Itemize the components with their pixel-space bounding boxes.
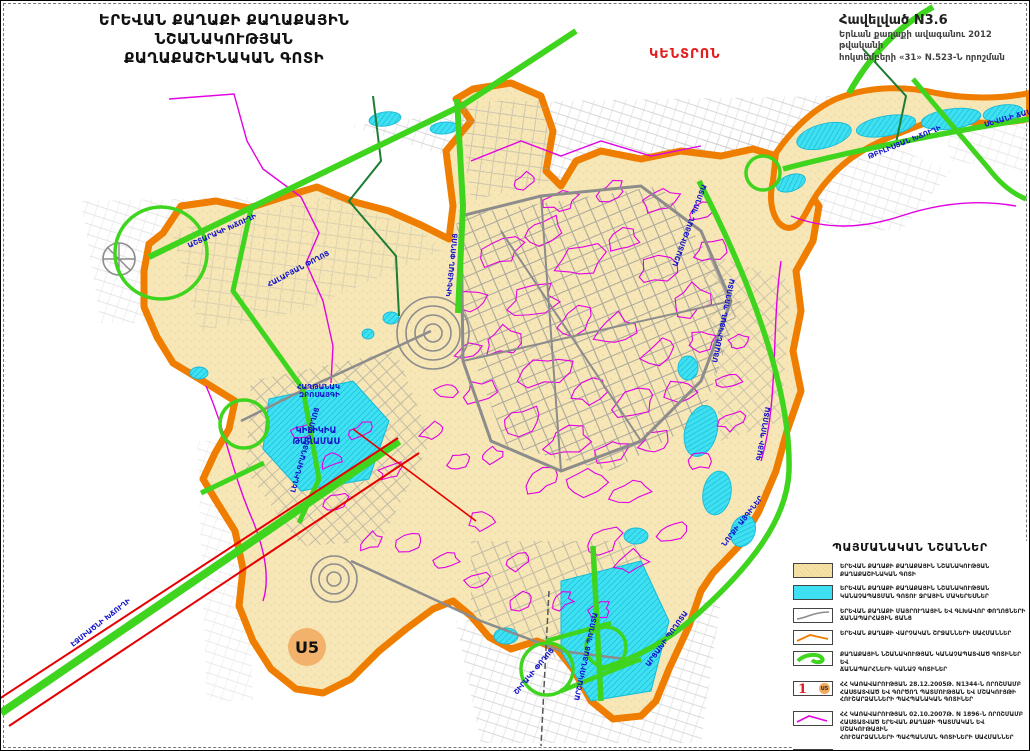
legend-item: ՀՀ ԿԱՌԱՎԱՐՈՒԹՅԱՆ 02.10.2007Թ. N 1896-Ն Ո… [793, 711, 1027, 743]
zone-u5-icon: U5 [819, 683, 830, 694]
legend-item-line: ՀՀ ԿԱՌԱՎԱՐՈՒԹՅԱՆ 02.10.2007Թ. N 1896-Ն Ո… [840, 712, 1027, 720]
page-title-line1: ԵՐԵՎԱՆ ՔԱՂԱՔԻ ՔԱՂԱՔԱՅԻՆ ՆՇԱՆԱԿՈՒԹՅԱՆ [39, 11, 409, 49]
water-green-patch [362, 329, 374, 339]
legend-item: ԵՐԵՎԱՆ ՔԱՂԱՔԻ ՔԱՂԱՔԱՅԻՆ ՆՇԱՆԱԿՈՒԹՅԱՆՔԱՂԱ… [793, 563, 1027, 579]
legend-item-line: ԵՐԵՎԱՆ ՔԱՂԱՔԻ ՔԱՂԱՔԱՅԻՆ ՆՇԱՆԱԿՈՒԹՅԱՆ [840, 586, 989, 594]
legend-item-text: ՀՀ ԿԱՌԱՎԱՐՈՒԹՅԱՆ 02.10.2007Թ. N 1896-Ն Ո… [840, 711, 1027, 743]
legend-item-line: ՔԱՂԱՔԱՅԻՆ ՆՇԱՆԱԿՈՒԹՅԱՆ ԿԱՆԱՉԱՊԱՏՎԱԾ ԳՈՏԻ… [840, 652, 1027, 667]
legend-item: ԵՐԵՎԱՆ ՔԱՂԱՔԻ ՎԱՐՉԱԿԱՆ ՇՐՋԱՆՆԵՐԻ ՍԱՀՄԱՆՆ… [793, 630, 1027, 645]
legend-item: ԵՐԵՎԱՆ ՔԱՂԱՔԻ ՔԱՂԱՔԱՅԻՆ ՆՇԱՆԱԿՈՒԹՅԱՆԿԱՆԱ… [793, 585, 1027, 601]
legend-item-text: ՔԱՂԱՔԱՅԻՆ ՆՇԱՆԱԿՈՒԹՅԱՆ ԿԱՆԱՉԱՊԱՏՎԱԾ ԳՈՏԻ… [840, 651, 1027, 675]
legend-symbol-green-road-line [793, 651, 833, 666]
legend-symbol-orange-line [793, 630, 833, 645]
legend-item-text: ԵՐԵՎԱՆ ՔԱՂԱՔԻ ՎԱՐՉԱԿԱՆ ՇՐՋԱՆՆԵՐԻ ՍԱՀՄԱՆՆ… [840, 630, 1011, 639]
legend-item-text: ՀՀ ԿԱՌԱՎԱՐՈՒԹՅԱՆ 28.12.2005Թ. N1344-Ն ՈՐ… [840, 681, 1021, 705]
monument-number-icon: 1 [798, 682, 807, 697]
legend-item: 1U5ՀՀ ԿԱՌԱՎԱՐՈՒԹՅԱՆ 28.12.2005Թ. N1344-Ն… [793, 681, 1027, 705]
legend-item-line: ԵՐԵՎԱՆ ՔԱՂԱՔԻ ՎԱՐՉԱԿԱՆ ՇՐՋԱՆՆԵՐԻ ՍԱՀՄԱՆՆ… [840, 631, 1011, 639]
street-label: ԶԲՈՍԱՅԳԻ [299, 391, 340, 399]
water-green-patch [624, 528, 648, 544]
legend: ՊԱՅՄԱՆԱԿԱՆ ՆՇԱՆՆԵՐ ԵՐԵՎԱՆ ՔԱՂԱՔԻ ՔԱՂԱՔԱՅ… [793, 541, 1027, 751]
legend-item-line: ՀԱՍՏԱՏՎԱԾ ԵՐԵՎԱՆ ՔԱՂԱՔԻ ՊԱՏՄԱԿԱՆ ԵՎ ՄՇԱԿ… [840, 720, 1027, 735]
annotation-appendix: Հավելված N3.6 [839, 13, 1025, 28]
water-green-patch [383, 312, 399, 324]
annotation-line3: հոկտեմբերի «31» N.523-Ն որոշման [839, 53, 1025, 64]
legend-item-line: ՀՈՒՇԱՐՁԱՆՆԵՐԻ ՊԱՀՊԱՆԱԿԱՆ ԳՈՏԻՆԵՐ [840, 697, 1021, 705]
legend-symbol-monument-markers: 1U5 [793, 681, 833, 696]
district-area-label: ԿԻԼԻԿԻԱ ԹԱՂԱՄԱՍ [292, 426, 340, 447]
legend-item-line: ՀԱՍՏԱՏՎԱԾ ԵՎ ԳՈՐԾՈՂ ՊԱՏՄՈՒԹՅԱՆ ԵՎ ՄՇԱԿՈՒ… [840, 690, 1021, 698]
annotation-line2: Երևան քաղաքի ավագանու 2012 թվականի [839, 30, 1025, 53]
page-title-line2: ՔԱՂԱՔԱՇԻՆԱԿԱՆ ԳՈՏԻ [39, 49, 409, 68]
svg-text:ԹԱՂԱՄԱՍ: ԹԱՂԱՄԱՍ [292, 437, 340, 447]
legend-symbol-cyan-area [793, 585, 833, 600]
page-title: ԵՐԵՎԱՆ ՔԱՂԱՔԻ ՔԱՂԱՔԱՅԻՆ ՆՇԱՆԱԿՈՒԹՅԱՆ ՔԱՂ… [39, 11, 409, 67]
zone-marker-u5: U5 [288, 628, 326, 666]
legend-item-line: ԵՐԵՎԱՆ ՔԱՂԱՔԻ ՔԱՂԱՔԱՅԻՆ ՆՇԱՆԱԿՈՒԹՅԱՆ [840, 564, 989, 572]
legend-title: ՊԱՅՄԱՆԱԿԱՆ ՆՇԱՆՆԵՐ [793, 541, 1027, 554]
legend-symbol-gray-road-line [793, 608, 833, 623]
legend-item-line: ՃԱՆԱՊԱՐՀՆԵՐԻ ԿԱՆԱՉ ԳՈՏԻՆԵՐ [840, 667, 1027, 675]
legend-symbol-magenta-line [793, 711, 833, 726]
legend-item-line: ԵՐԵՎԱՆ ՔԱՂԱՔԻ ՄԱՅՐՈՒՂԱՅԻՆ ԵՎ ԳԼԽԱՎՈՐ ՓՈՂ… [840, 609, 1025, 617]
legend-item-text: ԵՐԵՎԱՆ ՔԱՂԱՔԻ ՔԱՂԱՔԱՅԻՆ ՆՇԱՆԱԿՈՒԹՅԱՆՔԱՂԱ… [840, 563, 989, 579]
legend-item-line: ԿԱՆԱՉԱՊԱՏՄԱՆ ԳՈՏՈՒ ՋՐԱՅԻՆ ՄԱԿԵՐԵՍՆԵՐ [840, 594, 989, 602]
svg-text:U5: U5 [295, 638, 319, 657]
legend-item-text: ԵՐԵՎԱՆ ՔԱՂԱՔԻ ՄԱՅՐՈՒՂԱՅԻՆ ԵՎ ԳԼԽԱՎՈՐ ՓՈՂ… [840, 608, 1025, 624]
legend-item-line: ՔԱՂԱՔԱՇԻՆԱԿԱՆ ԳՈՏԻ [840, 572, 989, 580]
legend-item: ԵՐԵՎԱՆ ՔԱՂԱՔԻ ՄԱՅՐՈՒՂԱՅԻՆ ԵՎ ԳԼԽԱՎՈՐ ՓՈՂ… [793, 608, 1027, 624]
water-green-patch [190, 367, 208, 379]
decision-annotation: Հավելված N3.6 Երևան քաղաքի ավագանու 2012… [839, 13, 1025, 64]
legend-item-line: ՃԱՆԱՊԱՐՀԱՅԻՆ ՑԱՆՑ [840, 616, 1025, 624]
map-sheet: ԵՐԵՎԱՆ ՔԱՂԱՔԻ ՔԱՂԱՔԱՅԻՆ ՆՇԱՆԱԿՈՒԹՅԱՆ ՔԱՂ… [0, 0, 1030, 751]
legend-symbol-beige-area [793, 563, 833, 578]
district-label-kentron: ԿԵՆՏՐՈՆ [649, 47, 721, 62]
legend-item-line: ՀՈՒՇԱՐՁԱՆՆԵՐԻ ՊԱՀՊԱՆՄԱՆ ԳՈՏԻՆԵՐԻ ՍԱՀՄԱՆՆ… [840, 735, 1027, 743]
legend-item-line: ՀՀ ԿԱՌԱՎԱՐՈՒԹՅԱՆ 28.12.2005Թ. N1344-Ն ՈՐ… [840, 682, 1021, 690]
legend-item: ՔԱՂԱՔԱՅԻՆ ՆՇԱՆԱԿՈՒԹՅԱՆ ԿԱՆԱՉԱՊԱՏՎԱԾ ԳՈՏԻ… [793, 651, 1027, 675]
street-label: ՀԱՂԹԱՆԱԿ [297, 383, 340, 391]
legend-item-text: ԵՐԵՎԱՆ ՔԱՂԱՔԻ ՔԱՂԱՔԱՅԻՆ ՆՇԱՆԱԿՈՒԹՅԱՆԿԱՆԱ… [840, 585, 989, 601]
water-green-patch [678, 356, 698, 380]
legend-rows: ԵՐԵՎԱՆ ՔԱՂԱՔԻ ՔԱՂԱՔԱՅԻՆ ՆՇԱՆԱԿՈՒԹՅԱՆՔԱՂԱ… [793, 563, 1027, 751]
svg-text:ԿԻԼԻԿԻԱ: ԿԻԼԻԿԻԱ [296, 426, 337, 436]
